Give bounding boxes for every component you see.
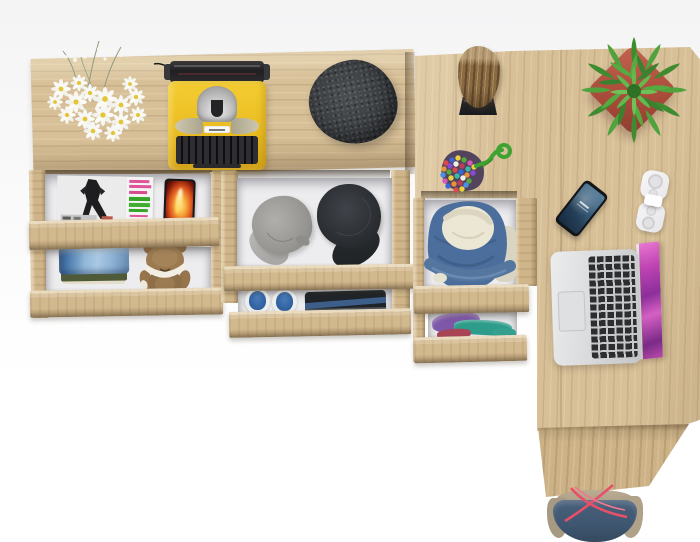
- gadget-circle: [647, 173, 665, 191]
- cap-seam: [324, 190, 375, 239]
- desk-plank-seam: [560, 48, 562, 432]
- log-display: [456, 46, 502, 118]
- laptop: [550, 240, 666, 368]
- denim-jacket: [424, 198, 520, 296]
- typewriter-label: [204, 126, 230, 133]
- shoes-drawer-front: [229, 308, 412, 338]
- magazine-green-line: [129, 203, 150, 207]
- shoe-toe: [249, 291, 266, 310]
- flame-highlight: [174, 188, 184, 215]
- basket-slot: [211, 100, 223, 117]
- tote-bag: [547, 484, 645, 542]
- caps-unit-right-rail: [391, 170, 410, 330]
- daisy-bouquet: [33, 27, 161, 145]
- typewriter-keyboard: [176, 136, 258, 164]
- pompom-pouch: [432, 138, 516, 196]
- shelf-desk-seam: [405, 52, 415, 174]
- product-photo-scene: [0, 0, 700, 542]
- carriage-highlight: [174, 65, 260, 67]
- jacket-drawer-front: [414, 284, 529, 314]
- magazine-green-line: [129, 197, 150, 201]
- fire-photo-screen: [165, 181, 193, 222]
- typewriter: [166, 56, 268, 172]
- magazine-title-line: [129, 191, 147, 194]
- magazine-bw: [57, 175, 127, 224]
- succulent-plant: [576, 36, 694, 144]
- black-cap: [317, 184, 381, 248]
- carriage-ribbon-line: [178, 73, 256, 75]
- magazine-green-line: [129, 209, 148, 212]
- magazine-green: [126, 177, 154, 223]
- typewriter-carriage: [170, 61, 264, 83]
- typewriter-spacebar: [193, 164, 241, 168]
- laptop-keyboard: [588, 255, 638, 359]
- bag-straps: [547, 484, 645, 542]
- jeans-drawer-front: [30, 287, 223, 317]
- caps-drawer-front: [224, 264, 414, 292]
- shoe-toe: [276, 292, 294, 312]
- folded-jeans: [59, 246, 129, 274]
- laptop-base: [550, 249, 642, 366]
- gadget-circle: [641, 215, 656, 230]
- magazine-title-line: [129, 180, 149, 183]
- label-text-line: [209, 129, 225, 131]
- type-basket: [197, 86, 237, 122]
- jeans-stack: [59, 247, 131, 287]
- magazine-title-line: [130, 215, 148, 217]
- laptop-trackpad: [558, 291, 586, 332]
- shirts-drawer-front: [414, 335, 528, 364]
- magazine-title-line: [129, 185, 151, 188]
- typebar-fan: [175, 118, 203, 134]
- magazines-drawer-front: [29, 217, 220, 250]
